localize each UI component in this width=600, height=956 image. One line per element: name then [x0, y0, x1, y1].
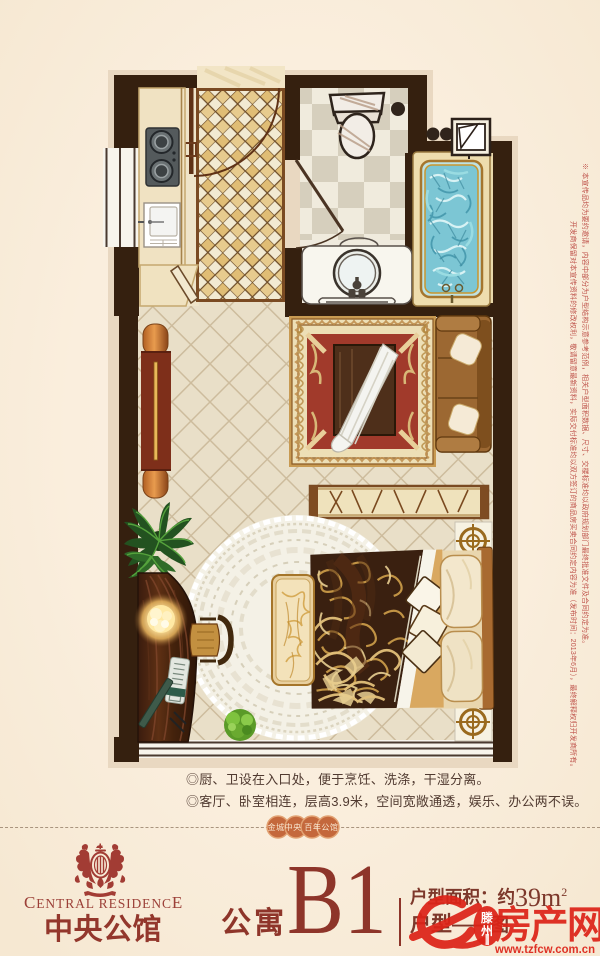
- svg-text:www.tzfcw.com.cn: www.tzfcw.com.cn: [494, 942, 595, 956]
- svg-text:金城中央 百年公馆: 金城中央 百年公馆: [268, 822, 339, 832]
- svg-text:房产网: 房产网: [494, 905, 600, 947]
- svg-text:滕: 滕: [481, 910, 494, 925]
- svg-text:州: 州: [480, 924, 493, 938]
